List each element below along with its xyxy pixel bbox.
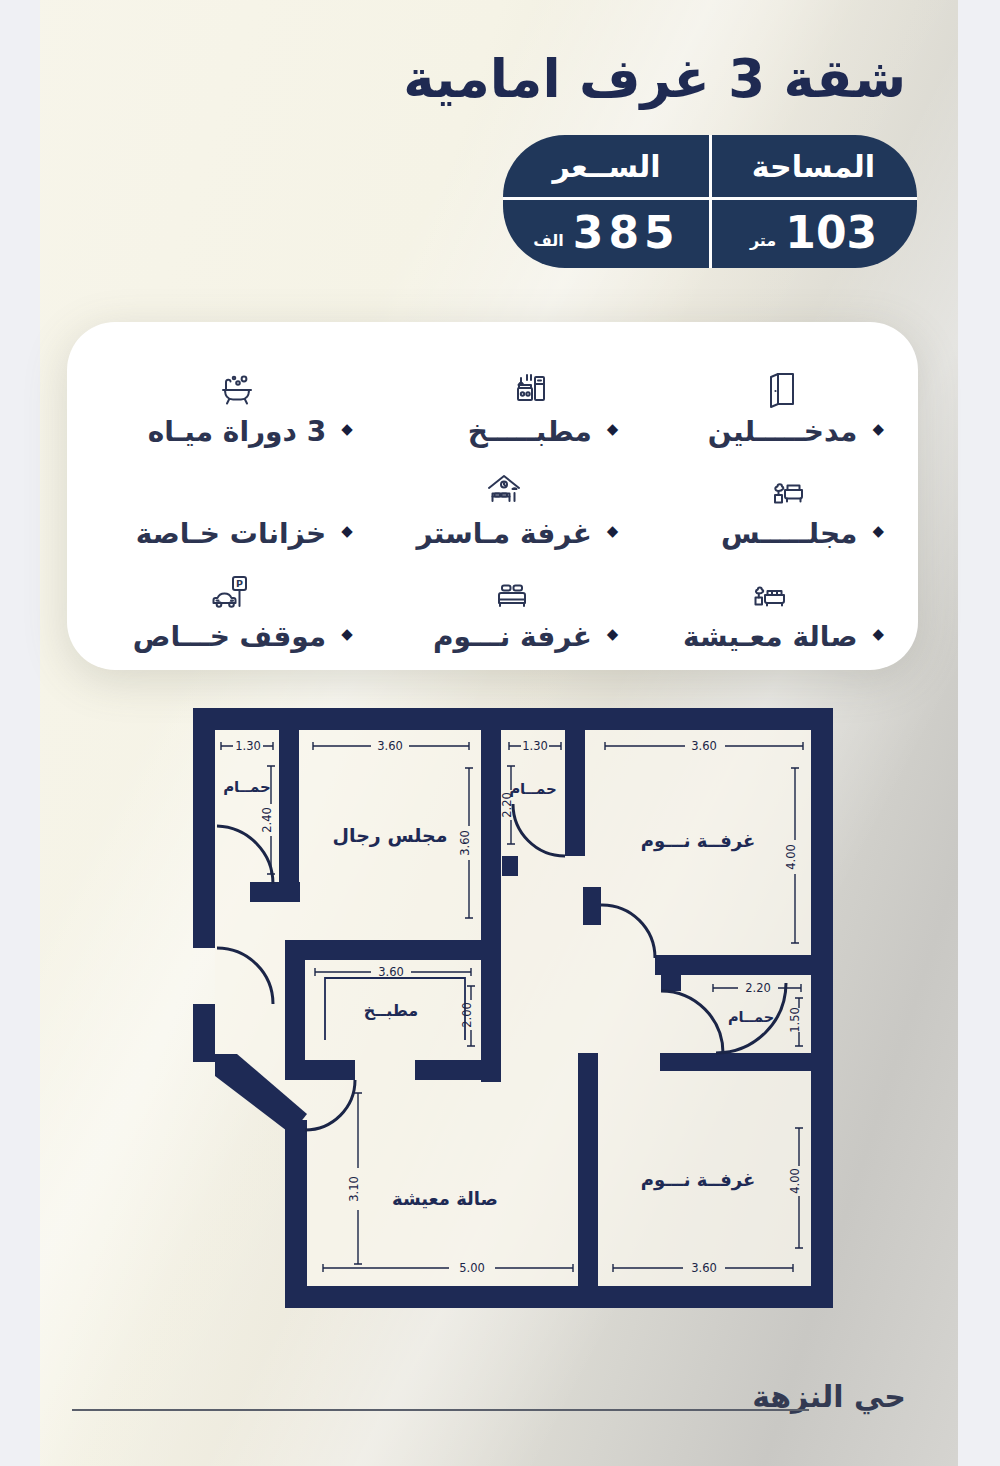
dim-majlis-w: 3.60 [377,739,403,753]
feature-bathrooms: ◆ 3 دوراة ميـاه [97,346,357,449]
feature-bathrooms-main: 3 دوراة ميـاه [148,365,326,449]
info-box-vertical-divider [709,135,712,268]
diamond-bullet: ◆ [341,524,353,539]
feature-private-parking: ◆ P موقف خـــاص [97,551,357,654]
feature-kitchen-main: مطبـــــخ [468,365,592,449]
area-unit: متر [750,231,776,250]
price-cell: الســعر 385 الف [503,135,710,268]
wall-living-left [285,1120,307,1286]
feature-master-bedroom-main: غرفة مـاستر [416,467,591,551]
feature-majlis: ◆ مجلـــــس [628,449,888,552]
feature-label: خزانات خـاصة [136,516,326,551]
wall-bath3-bottom [660,1053,811,1071]
wall-bath3-left-stub [661,975,681,991]
area-cell: المساحة 103 متر [710,135,917,268]
diamond-bullet: ◆ [607,627,619,642]
wall-hall-north [655,955,811,975]
feature-bedroom: ◆ غرفة نـــوم [363,551,623,654]
dim-bed1-w: 3.60 [691,739,717,753]
majlis-sofa-icon [765,467,813,515]
feature-label: مجلـــــس [721,516,857,551]
area-price-box: المساحة 103 متر الســعر 385 الف [503,135,917,268]
left-edge-strip [0,0,40,1466]
price-header: الســعر [503,135,710,197]
feature-master-bedroom: ◆ غرفة مـاستر [363,449,623,552]
master-bedroom-icon [480,467,528,515]
wall-bath2-stub [502,856,518,876]
room-label-living: صالة معيشة [392,1188,498,1209]
diamond-bullet: ◆ [341,627,353,642]
dim-bed1-h: 4.00 [784,844,798,870]
room-label-majlis: مجلس رجال [333,824,448,847]
diamond-bullet: ◆ [341,422,353,437]
room-label-bedroom-top: غرفــة نـــوم [641,830,755,852]
diamond-bullet: ◆ [607,422,619,437]
feature-entrances: ◆ مدخـــــلين [628,346,888,449]
kitchen-icon [506,365,554,413]
diamond-bullet: ◆ [872,524,884,539]
price-value: 385 الف [503,197,710,268]
floor-plan-svg: 1.30 2.40 3.60 3.60 1.30 2.20 3.60 4.00 … [193,708,833,1308]
feature-label: مطبـــــخ [468,414,592,449]
diamond-bullet: ◆ [872,627,884,642]
dim-bed2-w: 3.60 [691,1261,717,1275]
right-edge-strip [958,0,1000,1466]
dim-living-w: 5.00 [459,1261,485,1275]
footer-divider-line [72,1409,809,1411]
info-box-horizontal-divider [503,197,917,200]
room-label-kitchen: مطبــخ [364,1001,419,1020]
wall-outer-left-lower [193,1004,215,1062]
feature-private-closets: ◆ خزانات خـاصة [97,449,357,552]
living-sofa-icon [746,570,794,618]
dim-bath2-w: 1.30 [522,739,548,753]
feature-entrances-main: مدخـــــلين [708,365,858,449]
dim-bath3-h: 1.50 [788,1007,802,1033]
wall-majlis-bottom [285,940,481,960]
diamond-bullet: ◆ [607,524,619,539]
dim-kitchen-w: 3.60 [378,965,404,979]
wall-bath2-right [565,730,585,856]
features-card: ◆ مدخـــــلين ◆ [67,322,918,670]
feature-kitchen: ◆ مطبـــــخ [363,346,623,449]
wall-center-spine [481,730,501,1082]
wall-kitchen-bottom-a [285,1060,355,1080]
feature-private-parking-main: P موقف خـــاص [133,570,326,654]
room-label-bedroom-bottom: غرفــة نـــوم [641,1169,755,1191]
dim-living-h: 3.10 [347,1176,361,1202]
wall-bath1-stub [250,882,300,902]
feature-label: صالة معـيشة [683,619,857,654]
area-header: المساحة [710,135,917,197]
parking-icon: P [205,570,253,618]
dim-bath1-h: 2.40 [260,807,274,833]
feature-majlis-main: مجلـــــس [721,467,857,551]
room-label-bath2: حمــام [509,780,557,798]
room-label-bath1: حمــام [223,778,271,796]
wall-bedroom2-left [578,1053,598,1286]
room-label-bath3: حمــام [728,1009,774,1025]
dim-bed2-h: 4.00 [788,1168,802,1194]
parking-letter: P [236,578,243,589]
wall-outer-right [811,708,833,1308]
dim-bath3-w: 2.20 [745,981,771,995]
real-estate-flyer: شقة 3 غرف امامية المساحة 103 متر الســعر… [0,0,1000,1466]
door-icon [759,365,807,413]
feature-private-closets-main: خزانات خـاصة [136,467,326,551]
feature-bedroom-main: غرفة نـــوم [433,570,592,654]
dim-kitchen-h: 2.00 [460,1002,474,1028]
wall-kitchen-left [285,960,305,1060]
wall-outer-top [193,708,833,730]
floor-plan: 1.30 2.40 3.60 3.60 1.30 2.20 3.60 4.00 … [193,708,833,1308]
feature-label: 3 دوراة ميـاه [148,414,326,449]
area-value: 103 متر [710,197,917,268]
feature-label: موقف خـــاص [133,619,326,654]
area-number: 103 [785,211,877,255]
feature-living-room-main: صالة معـيشة [683,570,857,654]
dim-bath1-w: 1.30 [235,739,261,753]
price-number: 385 [573,211,680,255]
wall-bedroom1-jamb [583,887,601,925]
wall-bath1-right [279,730,299,882]
diamond-bullet: ◆ [872,422,884,437]
no-icon [207,467,255,515]
wall-outer-bottom [285,1286,833,1308]
feature-label: مدخـــــلين [708,414,858,449]
page-title: شقة 3 غرف امامية [403,48,906,109]
dim-majlis-h: 3.60 [458,830,472,856]
feature-label: غرفة مـاستر [416,516,591,551]
bathtub-icon [213,365,261,413]
feature-label: غرفة نـــوم [433,619,592,654]
feature-living-room: ◆ صالة معـيشة [628,551,888,654]
wall-outer-left-upper [193,708,215,948]
price-unit: الف [533,231,564,250]
bed-icon [488,570,536,618]
